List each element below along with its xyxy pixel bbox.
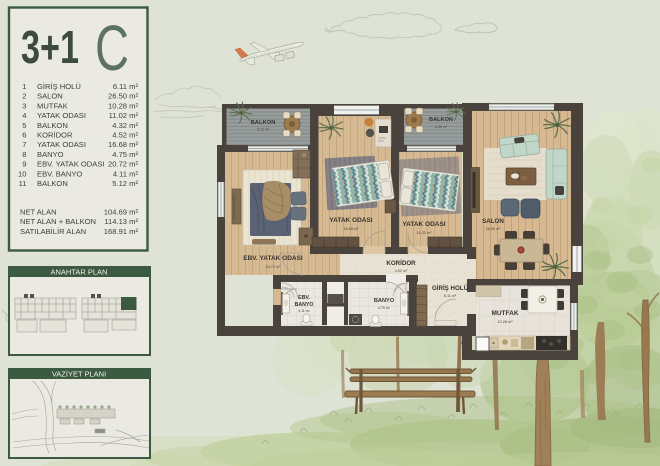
svg-text:4.52 m²: 4.52 m²	[112, 131, 138, 140]
svg-text:MUTFAK: MUTFAK	[491, 310, 518, 317]
svg-text:BANYO: BANYO	[374, 298, 395, 304]
svg-text:BALKON: BALKON	[251, 120, 276, 126]
svg-text:BALKON: BALKON	[37, 179, 68, 188]
svg-text:ANAHTAR PLAN: ANAHTAR PLAN	[51, 268, 108, 277]
svg-text:11.02 m²: 11.02 m²	[109, 111, 139, 120]
svg-text:26.50 m²: 26.50 m²	[108, 92, 138, 101]
svg-text:SATILABİLİR ALAN: SATILABİLİR ALAN	[20, 227, 86, 236]
svg-text:4: 4	[22, 111, 26, 120]
svg-text:3: 3	[22, 101, 26, 110]
svg-text:168.91 m²: 168.91 m²	[104, 227, 139, 236]
svg-text:16.68 m²: 16.68 m²	[108, 140, 138, 149]
svg-text:104.69 m²: 104.69 m²	[104, 208, 139, 217]
svg-text:1: 1	[22, 82, 26, 91]
svg-text:4.32 m²: 4.32 m²	[435, 125, 448, 129]
svg-text:11: 11	[19, 179, 27, 188]
svg-text:10.28 m²: 10.28 m²	[108, 101, 138, 110]
svg-text:20.72 m²: 20.72 m²	[108, 160, 138, 169]
svg-text:YATAK ODASI: YATAK ODASI	[37, 111, 86, 120]
svg-text:6: 6	[22, 131, 26, 140]
svg-text:YATAK ODASI: YATAK ODASI	[402, 221, 445, 228]
svg-text:8: 8	[22, 150, 26, 159]
svg-text:KORİDOR: KORİDOR	[37, 131, 73, 140]
svg-text:9: 9	[22, 160, 26, 169]
svg-text:10.28 m²: 10.28 m²	[498, 320, 514, 324]
svg-text:NET ALAN: NET ALAN	[20, 208, 57, 217]
svg-text:2: 2	[22, 92, 26, 101]
svg-text:5.12 m²: 5.12 m²	[257, 128, 270, 132]
svg-text:EBV.: EBV.	[298, 295, 310, 301]
svg-text:6.11 m²: 6.11 m²	[444, 294, 457, 298]
svg-text:NET ALAN + BALKON: NET ALAN + BALKON	[20, 217, 96, 226]
svg-text:BALKON: BALKON	[429, 117, 453, 123]
svg-text:BALKON: BALKON	[37, 121, 68, 130]
svg-text:GİRİŞ HOLÜ: GİRİŞ HOLÜ	[37, 82, 81, 91]
svg-text:114.13 m²: 114.13 m²	[104, 217, 138, 226]
svg-text:BANYO: BANYO	[295, 302, 314, 308]
svg-text:MUTFAK: MUTFAK	[37, 101, 68, 110]
svg-text:4.11 m²: 4.11 m²	[298, 309, 310, 313]
svg-text:VAZİYET PLANI: VAZİYET PLANI	[52, 370, 106, 379]
svg-text:5: 5	[22, 121, 26, 130]
svg-text:EBV. YATAK ODASI: EBV. YATAK ODASI	[243, 255, 303, 262]
svg-text:EBV. YATAK ODASI: EBV. YATAK ODASI	[37, 160, 105, 169]
svg-text:16.68 m²: 16.68 m²	[344, 227, 360, 231]
svg-text:C: C	[95, 12, 129, 84]
svg-text:4.75 m²: 4.75 m²	[378, 306, 391, 310]
svg-text:4.32 m²: 4.32 m²	[112, 121, 138, 130]
svg-text:7: 7	[22, 140, 26, 149]
svg-text:SALON: SALON	[37, 92, 63, 101]
svg-text:SALON: SALON	[482, 218, 504, 225]
svg-text:4.52 m²: 4.52 m²	[395, 269, 408, 273]
svg-text:10: 10	[18, 169, 26, 178]
svg-text:5.12 m²: 5.12 m²	[112, 179, 138, 188]
svg-text:11.02 m²: 11.02 m²	[417, 231, 432, 235]
svg-text:20.72 m²: 20.72 m²	[266, 265, 282, 269]
svg-text:KORİDOR: KORİDOR	[386, 260, 416, 267]
svg-text:6.11 m²: 6.11 m²	[113, 82, 139, 91]
svg-text:26.50 m²: 26.50 m²	[486, 227, 501, 231]
svg-text:3+1: 3+1	[21, 21, 79, 73]
svg-text:GİRİŞ HOLÜ: GİRİŞ HOLÜ	[432, 285, 469, 292]
svg-text:YATAK ODASI: YATAK ODASI	[37, 140, 86, 149]
svg-text:4.11 m²: 4.11 m²	[113, 169, 139, 178]
svg-text:BANYO: BANYO	[37, 150, 64, 159]
svg-text:4.75 m²: 4.75 m²	[112, 150, 138, 159]
svg-text:EBV. BANYO: EBV. BANYO	[37, 169, 82, 178]
svg-text:YATAK ODASI: YATAK ODASI	[329, 217, 372, 224]
